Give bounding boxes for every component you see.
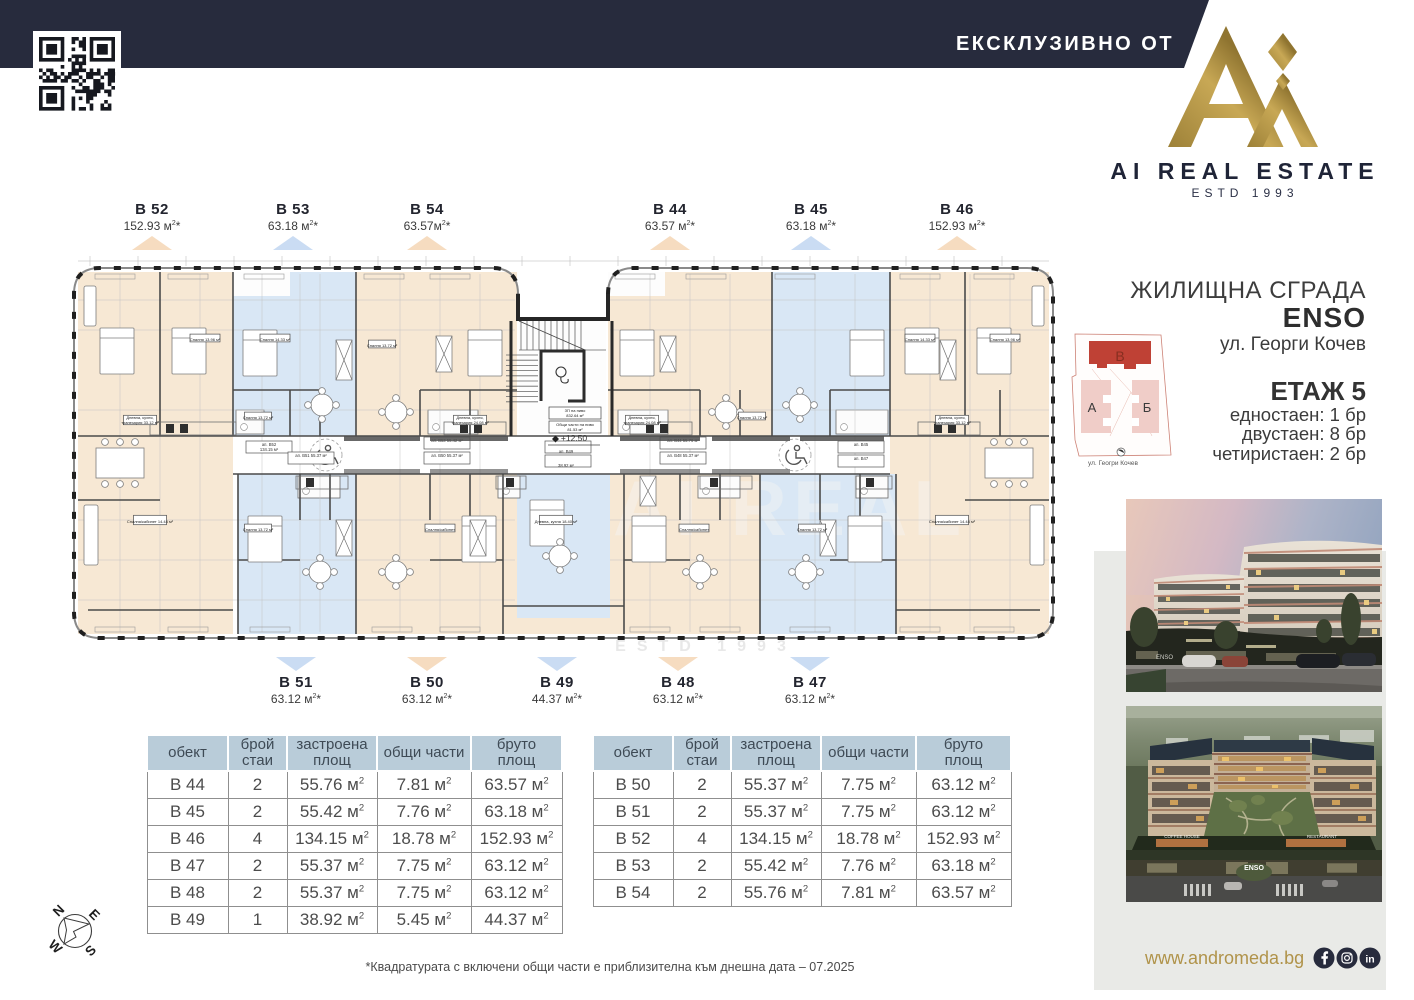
svg-text:Спалня 14.33 м²: Спалня 14.33 м² [260,337,291,342]
svg-text:ап. B49: ап. B49 [559,449,574,454]
svg-text:81.53 м²: 81.53 м² [567,427,583,432]
svg-text:Спалня 13.96 м²: Спалня 13.96 м² [190,337,221,342]
svg-text:А: А [1088,400,1097,415]
svg-text:RESTAURANT: RESTAURANT [1307,834,1337,839]
svg-text:Спалня 13.72 м²: Спалня 13.72 м² [243,527,274,532]
svg-text:Спалня/кабинет 14.44 м²: Спалня/кабинет 14.44 м² [127,519,174,524]
svg-text:134.15 м²: 134.15 м² [260,447,279,452]
svg-text:трапезария 33.12 м²: трапезария 33.12 м² [121,420,159,425]
svg-text:Спалня 13.72 м²: Спалня 13.72 м² [367,343,398,348]
svg-text:ап. B50 55.37 м²: ап. B50 55.37 м² [431,453,463,458]
svg-text:Спалня 14.33 м²: Спалня 14.33 м² [905,337,936,342]
svg-text:ENSO: ENSO [1156,655,1173,661]
svg-text:Спалня 13.72 м²: Спалня 13.72 м² [243,415,274,420]
svg-text:В: В [1115,348,1124,364]
svg-text:W: W [46,937,66,957]
svg-text:ENSO: ENSO [1244,865,1264,872]
svg-text:832.64 м²: 832.64 м² [566,413,584,418]
svg-text:ап. B51 55.37 м²: ап. B51 55.37 м² [295,453,327,458]
svg-text:Б: Б [1143,400,1152,415]
svg-text:Спалня/кабинет: Спалня/кабинет [425,527,455,532]
svg-text:трапезария 24.08 м²: трапезария 24.08 м² [451,420,489,425]
svg-text:N: N [50,902,68,920]
svg-text:S: S [82,942,99,959]
svg-text:38.92 м²: 38.92 м² [558,463,575,468]
svg-text:COFFEE HOUSE: COFFEE HOUSE [1164,834,1200,839]
svg-text:+12.50: +12.50 [561,433,588,443]
svg-text:Дневна, кухня 18.40 м²: Дневна, кухня 18.40 м² [535,519,578,524]
svg-text:Спалня 13.72 м²: Спалня 13.72 м² [737,415,768,420]
svg-text:ул. Геогри Кочев: ул. Геогри Кочев [1088,460,1139,467]
svg-text:ап. B47: ап. B47 [854,456,869,461]
svg-text:Спалня/кабинет: Спалня/кабинет [679,527,709,532]
svg-text:ап. B48 55.37 м²: ап. B48 55.37 м² [667,453,699,458]
svg-text:трапезария 24.08 м²: трапезария 24.08 м² [623,420,661,425]
svg-text:Спалня/кабинет 14.44 м²: Спалня/кабинет 14.44 м² [929,519,976,524]
svg-text:ESTD 1993: ESTD 1993 [615,638,797,655]
svg-text:Спалня 13.72 м²: Спалня 13.72 м² [797,527,828,532]
svg-text:in: in [1365,954,1374,966]
svg-text:ап. B45: ап. B45 [854,442,869,447]
